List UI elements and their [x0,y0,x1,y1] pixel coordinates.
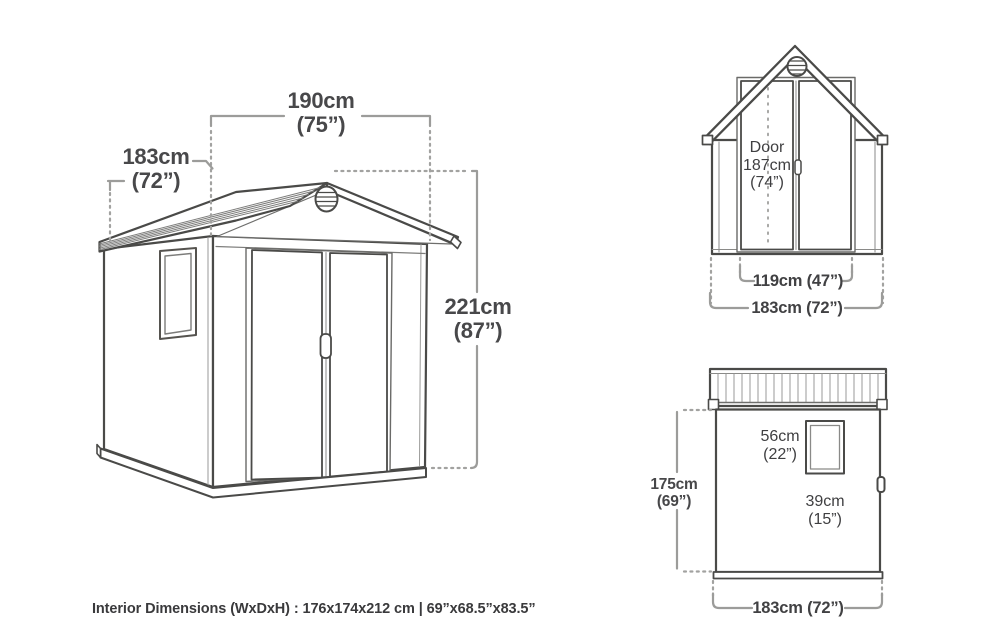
front-door-label: Door 187cm (74”) [743,139,791,192]
front-door-in: (74”) [743,174,791,192]
side-height-cm: 175cm [650,476,697,493]
side-view-drawing [677,369,887,608]
main-depth-cm: 183cm [122,145,189,169]
side-window-height-cm: 39cm [805,493,844,511]
front-overall-width-label: 183cm (72”) [751,299,842,317]
front-door-width-label: 119cm (47”) [753,272,843,290]
main-depth-label: 183cm (72”) [122,145,189,193]
side-window-width-in: (22”) [760,446,799,464]
main-height-in: (87”) [444,319,511,343]
side-window-height-label: 39cm (15”) [805,493,844,528]
front-door-cm: 187cm [743,157,791,175]
front-door-word: Door [743,139,791,157]
main-height-label: 221cm (87”) [444,295,511,343]
side-height-label: 175cm (69”) [650,476,697,510]
side-window-width-cm: 56cm [760,428,799,446]
main-width-in: (75”) [287,113,354,137]
side-window-width-label: 56cm (22”) [760,428,799,463]
side-window-height-in: (15”) [805,511,844,529]
main-width-cm: 190cm [287,89,354,113]
side-height-in: (69”) [650,493,697,510]
main-depth-in: (72”) [122,169,189,193]
shed-dimensions-diagram: 190cm (75”) 183cm (72”) 221cm (87”) Door… [0,0,1000,631]
side-overall-depth-label: 183cm (72”) [752,599,843,617]
interior-dimensions-text: Interior Dimensions (WxDxH) : 176x174x21… [92,601,536,617]
front-view-drawing [703,46,888,308]
main-width-label: 190cm (75”) [287,89,354,137]
main-height-cm: 221cm [444,295,511,319]
